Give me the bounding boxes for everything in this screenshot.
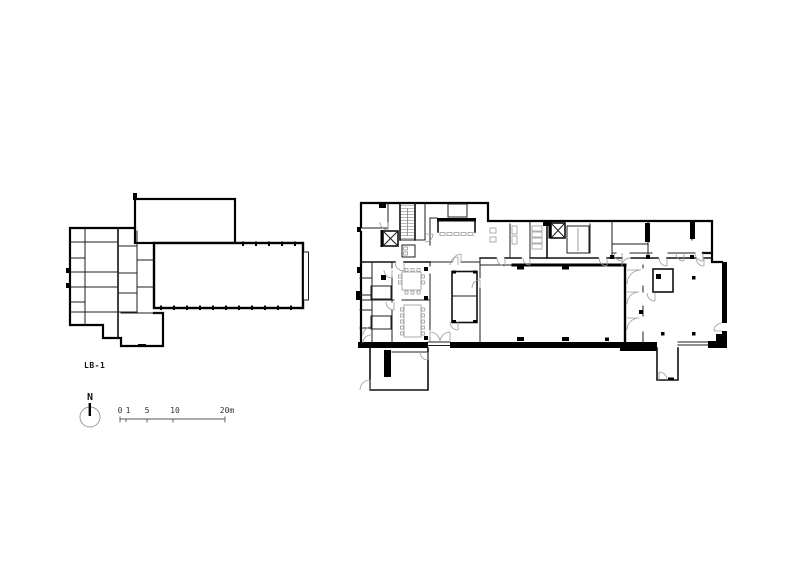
poche-walls: [358, 262, 727, 351]
stair-west-b: [371, 316, 391, 329]
lb1-upper-block: [135, 199, 235, 243]
northwest-core: [361, 203, 437, 262]
lower-annex-right: [657, 348, 678, 380]
open-area-columns: [661, 276, 696, 336]
elevator-north-core: [549, 222, 566, 239]
lb1-room-grid: [66, 228, 163, 347]
floor-plan-drawing: LB-1: [0, 0, 800, 565]
main-hall: [480, 265, 625, 342]
drawing-sheet: LB-1: [0, 0, 800, 565]
stair-north-core: [567, 226, 589, 253]
entry-lobby: [430, 257, 480, 342]
north-arrow: N: [80, 392, 100, 427]
meeting-table-upper: [399, 269, 425, 295]
meeting-table-lower: [401, 305, 425, 337]
lb1-main-hall: [154, 243, 303, 308]
stair-west-a: [371, 286, 391, 299]
scale-bar: 0 1 5 10 20m: [118, 406, 235, 423]
east-corridor: [627, 265, 722, 342]
lb1-roof-tab: [133, 193, 137, 200]
scale-label-20m: 20m: [220, 406, 235, 415]
elevator-northwest: [381, 230, 399, 247]
west-meeting-block: [360, 262, 430, 343]
lower-annex-left: [360, 348, 428, 390]
stair-entry-hall: [452, 271, 477, 324]
north-service-band: [480, 221, 712, 265]
scale-label-1: 1: [126, 406, 131, 415]
dock-stair: [437, 204, 476, 236]
north-arrow-label: N: [87, 392, 93, 403]
scale-label-0: 0: [118, 406, 123, 415]
plan-lb1: LB-1: [66, 193, 309, 370]
scale-bar-ticks: [120, 419, 225, 423]
scale-label-5: 5: [145, 406, 150, 415]
scale-label-10: 10: [170, 406, 180, 415]
lb1-right-shaft: [304, 252, 309, 300]
stair-northwest: [400, 203, 415, 240]
hatched-room: [647, 269, 673, 301]
plan-main-level: [356, 203, 727, 390]
plan-lb1-label: LB-1: [84, 361, 105, 370]
wc-stalls: [490, 226, 542, 249]
